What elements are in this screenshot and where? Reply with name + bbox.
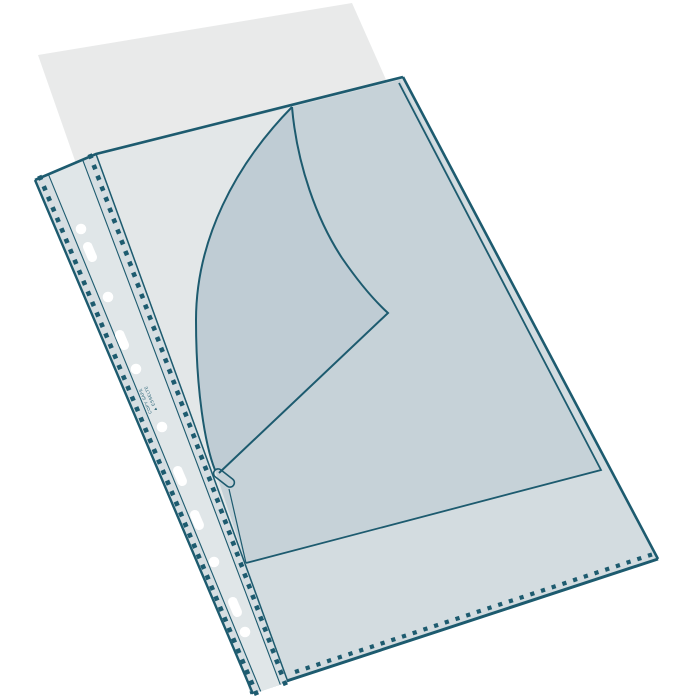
punch-hole-round xyxy=(76,224,87,235)
punched-pocket-illustration: COPY SAFE ▲ ESSELTE xyxy=(0,0,700,700)
punch-hole-round xyxy=(103,292,114,303)
punch-hole-round xyxy=(209,557,220,568)
punch-hole-round xyxy=(240,627,251,638)
punch-hole-round xyxy=(131,364,142,375)
punch-hole-round xyxy=(157,422,168,433)
product-illustration: COPY SAFE ▲ ESSELTE xyxy=(0,0,700,700)
